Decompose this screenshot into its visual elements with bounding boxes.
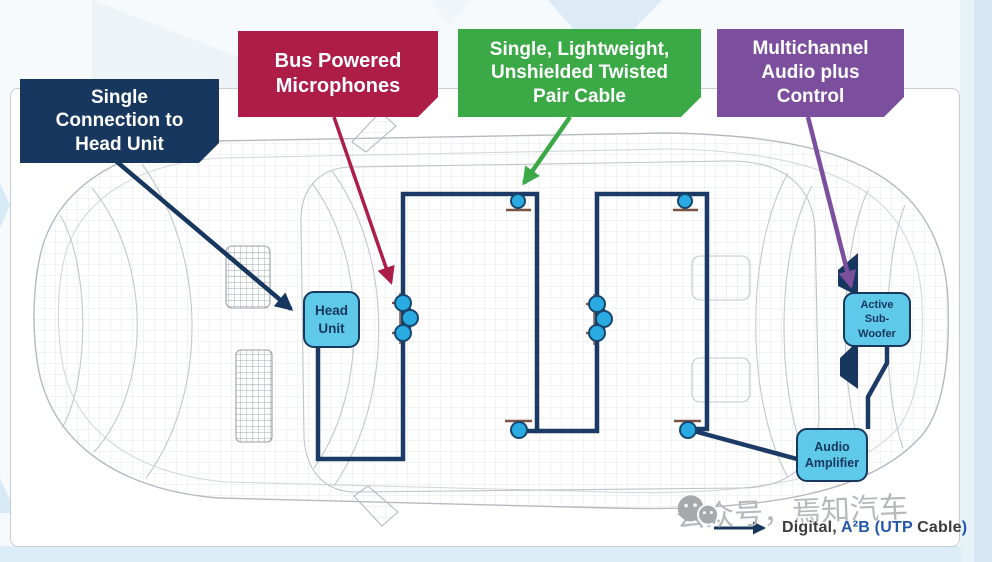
callout-bus-powered-microphones: Bus Powered Microphones [238, 31, 438, 117]
legend-paren: ) [962, 519, 968, 536]
microphone-node-icon [402, 310, 418, 326]
legend-a2b-label: A²B (UTP [841, 519, 917, 536]
head-unit-box: Head Unit [303, 291, 360, 348]
microphone-node-icon [589, 325, 605, 341]
wechat-icon [675, 492, 723, 532]
cable-legend: Digital, A²B (UTP Cable) [782, 519, 967, 537]
active-subwoofer-box: Active Sub- Woofer [843, 292, 911, 347]
car-grille-hatch [226, 246, 270, 308]
speaker-node-icon [511, 422, 527, 438]
microphone-node-icon [395, 295, 411, 311]
speaker-node-icon [680, 422, 696, 438]
microphone-node-icon [511, 194, 525, 208]
slide-canvas: Head Unit Active Sub- Woofer Audio Ampli… [0, 0, 992, 562]
legend-digital-label: Digital, [782, 519, 841, 536]
microphone-node-icon [589, 296, 605, 312]
car-grille-hatch [236, 350, 272, 442]
legend-cable-label: Cable [917, 519, 962, 536]
car-seat-hatch [692, 256, 750, 300]
microphone-node-icon [395, 325, 411, 341]
callout-multichannel: Multichannel Audio plus Control [717, 29, 904, 117]
microphone-node-icon [678, 194, 692, 208]
car-seat-hatch [692, 358, 750, 402]
audio-amplifier-box: Audio Amplifier [796, 428, 868, 482]
callout-single-connection: Single Connection to Head Unit [20, 79, 219, 163]
callout-utp-cable: Single, Lightweight, Unshielded Twisted … [458, 29, 701, 117]
